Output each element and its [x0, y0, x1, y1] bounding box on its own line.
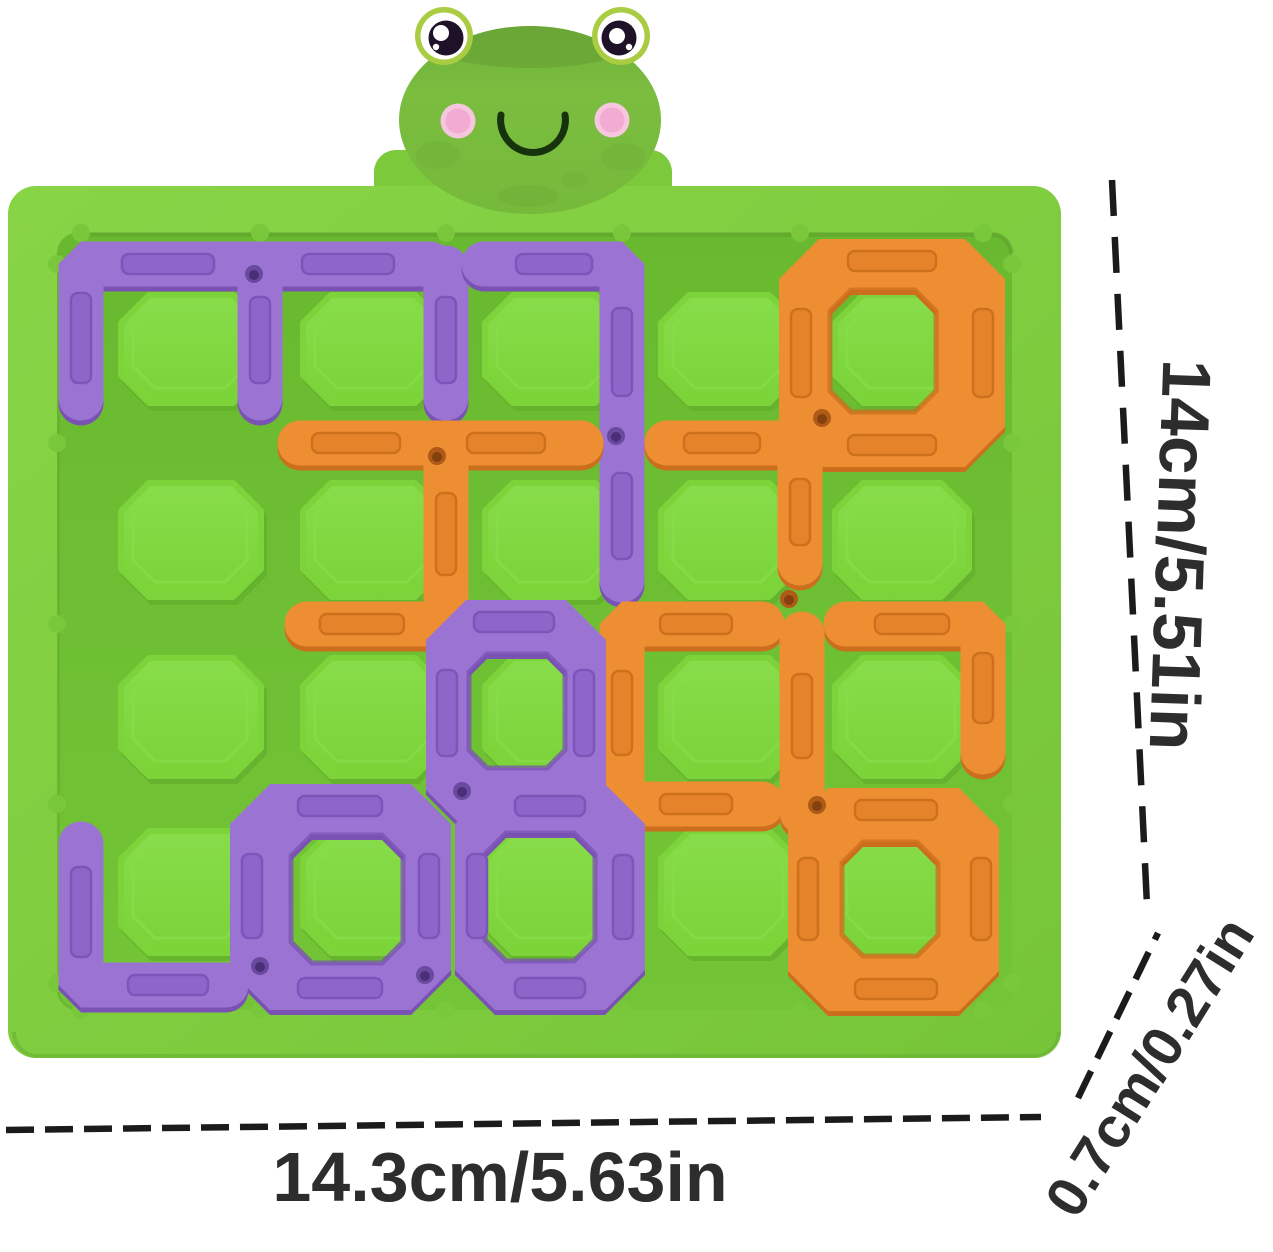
svg-text:14cm/5.51in: 14cm/5.51in [1135, 358, 1226, 752]
svg-text:14.3cm/5.63in: 14.3cm/5.63in [272, 1138, 727, 1216]
